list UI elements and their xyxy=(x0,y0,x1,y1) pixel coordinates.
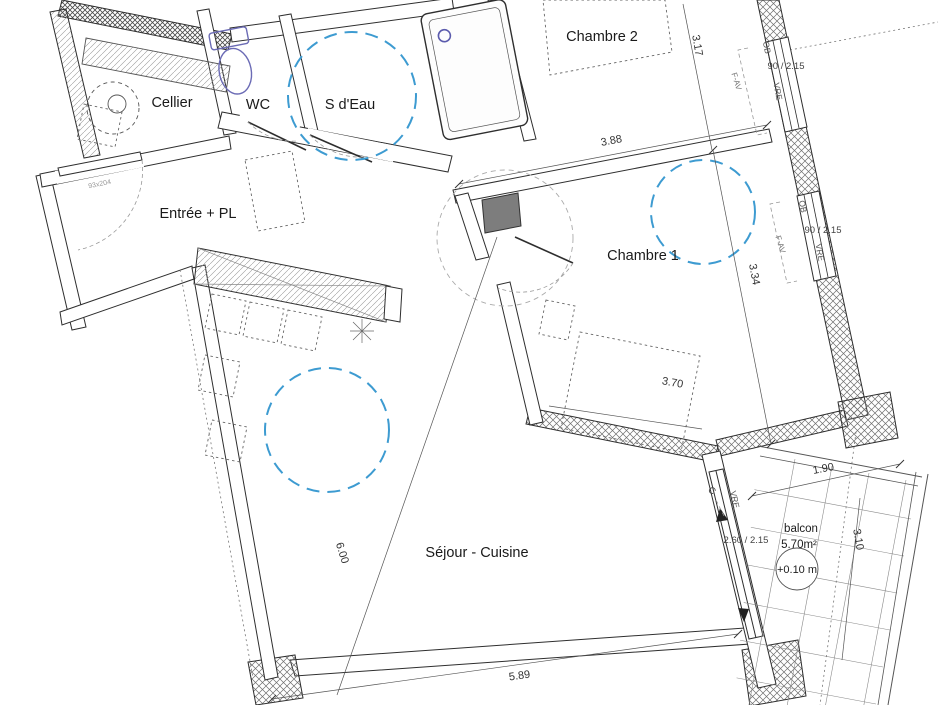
room-label-sdeau: S d'Eau xyxy=(325,97,375,113)
sdeau-door-opening xyxy=(305,128,396,162)
water-heater-inner-icon xyxy=(108,95,126,113)
kitchen-block-end-wall xyxy=(384,286,402,322)
window1-ob-label: OB xyxy=(761,40,773,54)
balcon-label: balcon xyxy=(784,523,818,535)
balcony-ne-corner-wall xyxy=(838,392,898,448)
dim-chambre1-width: 3.88 xyxy=(600,133,623,149)
floor-plan-drawing: 3.17 3.88 3.34 3.70 6.00 5.89 1.90 3.10 … xyxy=(0,0,940,705)
window1-size-label: 90 / 2.15 xyxy=(768,61,805,72)
dim-sejour-height: 6.00 xyxy=(333,541,351,565)
sejour-south-wall xyxy=(290,628,750,676)
balcon-level-label: +0.10 m xyxy=(777,564,817,576)
room-label-chambre1: Chambre 1 xyxy=(607,248,679,264)
room-label-chambre2: Chambre 2 xyxy=(566,29,638,45)
window1-fav-label: F-AV xyxy=(730,72,744,92)
window2-ob-label: OB xyxy=(797,199,809,213)
entry-door xyxy=(55,152,144,250)
dim-balcon-width: 1.90 xyxy=(812,461,835,477)
window1-fav-bracket xyxy=(738,48,767,135)
kitchen-unit-2 xyxy=(243,302,284,343)
light-symbol-icon xyxy=(350,319,374,343)
balcony-north-railing-inner xyxy=(760,456,918,486)
dim-chambre2-depth: 3.17 xyxy=(689,34,705,57)
entry-door-size-label: 93x204 xyxy=(88,179,112,190)
balcony-east-railing-outer xyxy=(888,474,928,705)
dim-balcon-depth: 3.10 xyxy=(850,528,866,551)
left-wall-cellier xyxy=(50,9,100,158)
window1-vre-label: VRE xyxy=(771,82,784,101)
room-label-cellier: Cellier xyxy=(151,95,192,111)
accessibility-circle-sejour xyxy=(265,368,389,492)
dim-sejour-width: 5.89 xyxy=(508,669,531,684)
chambre1-side-table xyxy=(539,300,575,340)
north-wall-wc-shower xyxy=(230,0,454,42)
dim-chambre1-depth: 3.34 xyxy=(746,263,762,286)
chambre1-south-wall-west xyxy=(526,408,718,462)
room-label-sejour: Séjour - Cuisine xyxy=(425,545,528,561)
floor-plan-page: 3.17 3.88 3.34 3.70 6.00 5.89 1.90 3.10 … xyxy=(0,0,940,705)
chambre1-south-wall-east xyxy=(716,410,848,456)
room-label-wc: WC xyxy=(246,97,270,113)
dim-bed-width: 3.70 xyxy=(661,375,684,391)
window2-size-label: 90 / 2.15 xyxy=(805,225,842,236)
entree-closet xyxy=(245,151,305,231)
structural-column xyxy=(482,193,521,233)
ne-extension-dotted-line xyxy=(790,22,938,50)
shower-tray-icon xyxy=(420,0,529,141)
kitchen-unit-3 xyxy=(281,310,322,351)
water-heater-icon xyxy=(87,82,139,134)
balcony-east-railing-inner xyxy=(878,472,916,705)
entree-south-wall xyxy=(60,266,194,325)
balcon-area-label: 5.70m² xyxy=(781,539,817,551)
room-label-entree: Entrée + PL xyxy=(160,206,237,222)
window2-fav-label: F-AV xyxy=(774,235,788,255)
fixtures xyxy=(77,0,700,462)
balcony-north-railing-outer xyxy=(758,446,922,477)
chambre1-west-wall-lower xyxy=(497,282,543,425)
balcony-door-size-label: 2.60 / 2.15 xyxy=(724,535,769,546)
chambre1-door-leaf xyxy=(515,237,573,263)
partition-walls xyxy=(40,0,776,688)
